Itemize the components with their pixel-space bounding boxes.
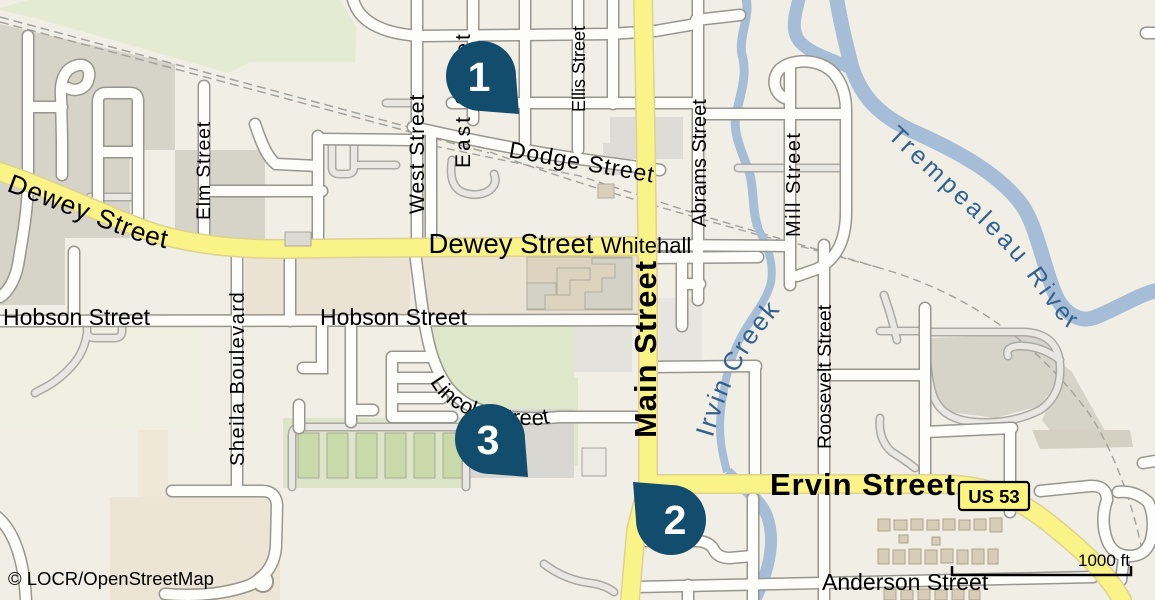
svg-text:US 53: US 53 <box>968 486 1019 507</box>
svg-text:1000 ft: 1000 ft <box>1078 551 1130 570</box>
svg-text:Elm Street: Elm Street <box>193 121 215 220</box>
svg-text:West Street: West Street <box>406 94 429 214</box>
svg-text:Sheila Boulevard: Sheila Boulevard <box>227 291 249 466</box>
svg-text:Abrams Street: Abrams Street <box>689 99 711 227</box>
svg-text:Whitehall: Whitehall <box>601 233 691 258</box>
svg-text:Main Street: Main Street <box>628 260 663 438</box>
svg-text:Ervin Street: Ervin Street <box>770 467 956 502</box>
svg-text:Mill Street: Mill Street <box>783 132 805 237</box>
svg-text:Roosevelt Street: Roosevelt Street <box>814 304 836 449</box>
svg-text:2: 2 <box>664 497 687 543</box>
svg-text:Hobson Street: Hobson Street <box>320 304 468 330</box>
svg-text:Anderson Street: Anderson Street <box>822 569 989 595</box>
svg-text:Hobson Street: Hobson Street <box>3 304 151 330</box>
svg-text:Ellis Street: Ellis Street <box>569 26 589 112</box>
svg-text:3: 3 <box>477 417 500 463</box>
svg-text:1: 1 <box>468 54 491 100</box>
svg-text:Dewey Street: Dewey Street <box>428 228 593 259</box>
svg-text:© LOCR/OpenStreetMap: © LOCR/OpenStreetMap <box>8 568 214 589</box>
